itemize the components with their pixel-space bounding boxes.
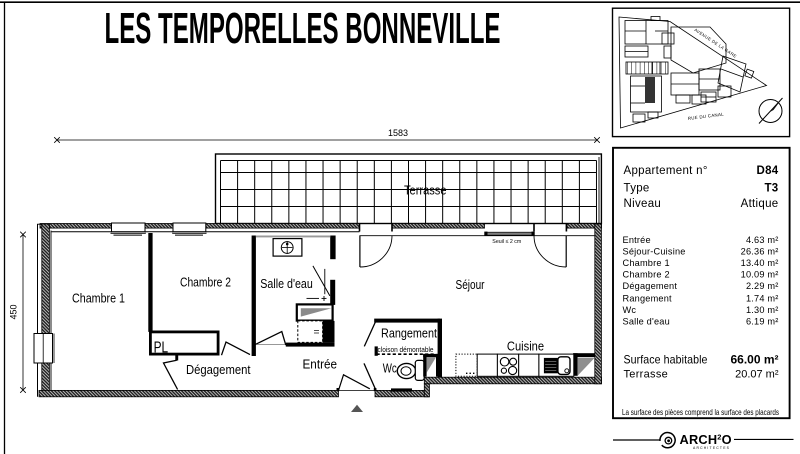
svg-text:Salle d'eau: Salle d'eau [260,276,313,291]
svg-text:LES TEMPORELLES BONNEVILLE: LES TEMPORELLES BONNEVILLE [105,5,501,53]
svg-text:cloison démontable: cloison démontable [378,345,434,354]
svg-text:1583: 1583 [388,128,408,138]
svg-text:Entrée: Entrée [303,356,338,371]
svg-text:Séjour-Cuisine: Séjour-Cuisine [623,246,686,256]
svg-text:Wc: Wc [383,360,397,375]
svg-text:Chambre 1: Chambre 1 [72,291,125,306]
svg-text:T3: T3 [764,182,778,194]
svg-text:D84: D84 [757,165,779,177]
svg-text:66.00 m²: 66.00 m² [730,352,778,366]
svg-text:Terrasse: Terrasse [404,184,447,198]
svg-text:2.29 m²: 2.29 m² [746,281,779,291]
svg-text:ARCHITECTES: ARCHITECTES [693,446,730,450]
svg-text:PL: PL [154,340,169,357]
svg-text:ARCH2O: ARCH2O [680,432,732,447]
svg-text:26.36 m²: 26.36 m² [741,246,779,256]
svg-text:Cuisine: Cuisine [507,339,544,354]
svg-text:Appartement n°: Appartement n° [624,165,708,177]
svg-text:La surface des pièces comprend: La surface des pièces comprend la surfac… [622,407,779,417]
svg-text:450: 450 [9,304,19,319]
svg-text:Séjour: Séjour [456,277,486,292]
svg-text:Attique: Attique [741,198,779,210]
svg-text:Dégagement: Dégagement [623,281,678,291]
svg-text:Type: Type [624,182,650,194]
svg-text:1.74 m²: 1.74 m² [746,294,779,304]
svg-text:Wc: Wc [623,305,637,315]
svg-text:Terrasse: Terrasse [624,369,669,381]
svg-text:Niveau: Niveau [624,198,662,210]
svg-text:6.19 m²: 6.19 m² [746,317,779,327]
svg-text:Rangement: Rangement [381,325,437,340]
svg-text:4.63 m²: 4.63 m² [746,235,779,245]
svg-text:Seuil ≤ 2 cm: Seuil ≤ 2 cm [492,239,521,245]
svg-text:Chambre 2: Chambre 2 [180,274,231,289]
svg-text:Salle d'eau: Salle d'eau [623,317,670,327]
svg-text:Chambre 2: Chambre 2 [623,269,670,279]
svg-text:Chambre 1: Chambre 1 [623,258,670,268]
svg-text:Surface habitable: Surface habitable [624,352,708,366]
svg-text:20.07 m²: 20.07 m² [735,369,779,381]
svg-text:13.40 m²: 13.40 m² [741,258,779,268]
svg-text:Dégagement: Dégagement [186,362,251,377]
svg-text:10.09 m²: 10.09 m² [741,269,779,279]
svg-text:Rangement: Rangement [623,294,673,304]
svg-text:1.30 m²: 1.30 m² [746,305,779,315]
svg-text:Entrée: Entrée [623,235,651,245]
